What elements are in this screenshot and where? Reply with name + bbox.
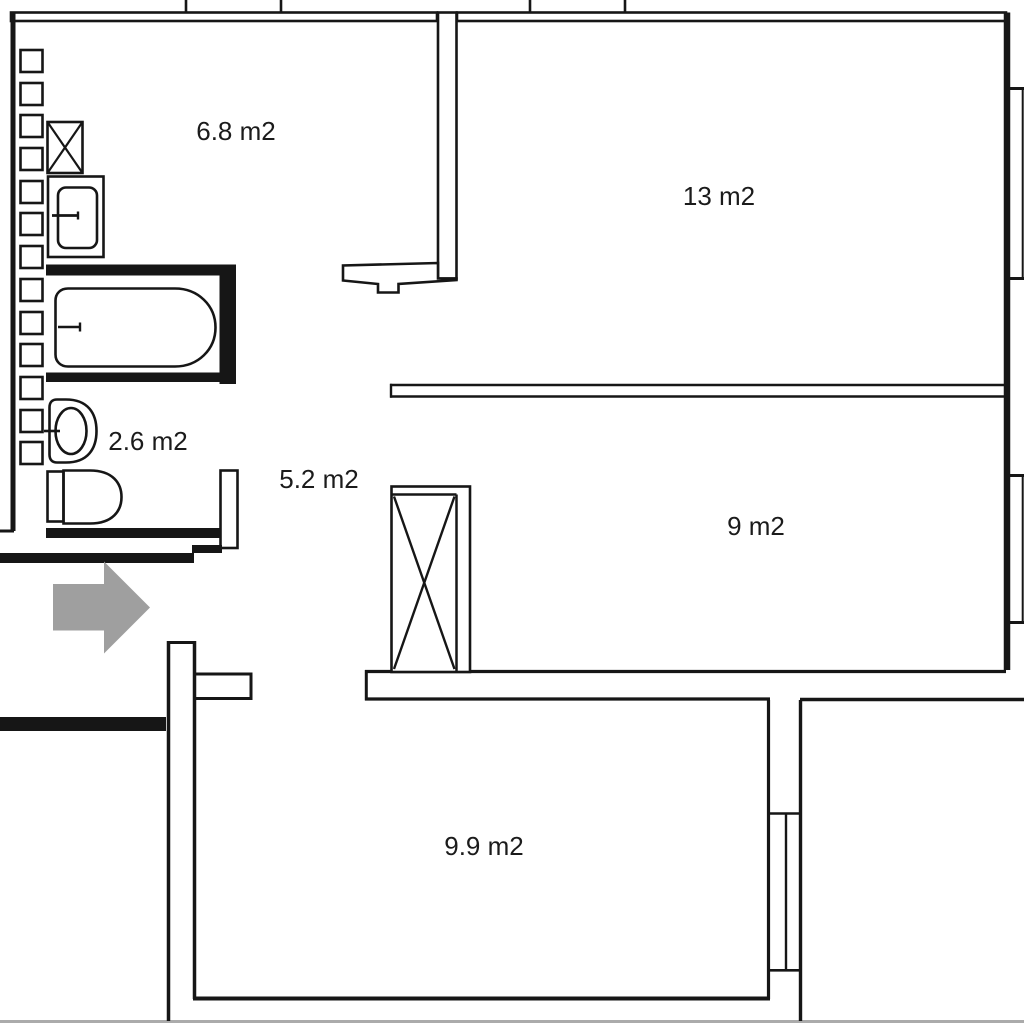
wc-bottom-wall	[46, 528, 221, 538]
top-wall-right	[457, 13, 1006, 22]
radiator-segment	[21, 181, 43, 203]
wc-door-jamb	[221, 471, 238, 549]
toilet-bowl	[64, 471, 122, 524]
radiator-segment	[21, 279, 43, 301]
entrance-arrow	[53, 562, 150, 654]
floor-plan-svg: 6.8 m2 13 m2 2.6 m2 5.2 m2 9 m2 9.9 m2	[0, 0, 1024, 1024]
balcony-window	[767, 814, 802, 971]
radiator-segment	[21, 344, 43, 366]
washbasin	[44, 400, 97, 463]
exterior-walls	[0, 0, 1024, 1022]
balcony-partition	[767, 700, 802, 1021]
hallway-top-wall	[0, 553, 194, 563]
tub-niche-top-wall	[46, 265, 236, 276]
radiator-segment	[21, 377, 43, 399]
hallway-top-wall-step	[192, 545, 222, 553]
tub-niche-right-wall	[220, 275, 237, 384]
radiator-segment	[21, 115, 43, 137]
radiator-segment	[21, 410, 43, 432]
room-label-kitchen: 9.9 m2	[444, 831, 524, 861]
tub-niche-bottom-wall	[46, 373, 220, 383]
room-label-bathroom: 6.8 m2	[196, 116, 276, 146]
bathroom-sink	[48, 177, 104, 258]
room-label-bedroom: 9 m2	[727, 511, 785, 541]
toilet-tank	[48, 472, 64, 522]
room-label-wc: 2.6 m2	[108, 426, 188, 456]
radiator-segment	[21, 246, 43, 268]
right-wall-windows	[1010, 88, 1024, 623]
toilet	[48, 471, 122, 524]
radiator-segment	[21, 148, 43, 170]
floor-plan: 6.8 m2 13 m2 2.6 m2 5.2 m2 9 m2 9.9 m2	[0, 0, 1024, 1024]
ventilation-shaft	[392, 487, 471, 673]
radiator-segment	[21, 442, 43, 464]
interior-walls	[0, 545, 1024, 1021]
bathroom-walls	[46, 13, 457, 549]
partition-wall-thin	[390, 384, 1004, 398]
bathroom-right-wall	[438, 13, 457, 279]
radiator-column	[21, 50, 43, 464]
radiator-segment	[21, 50, 43, 72]
radiator-segment	[21, 312, 43, 334]
top-wall-left	[11, 13, 437, 22]
entrance-bottom-wall	[0, 717, 166, 731]
room-label-hallway: 5.2 m2	[279, 464, 359, 494]
radiator-segment	[21, 83, 43, 105]
washing-machine	[48, 122, 83, 173]
radiator-segment	[21, 213, 43, 235]
room-label-living-room: 13 m2	[683, 181, 755, 211]
bathtub	[56, 289, 216, 367]
